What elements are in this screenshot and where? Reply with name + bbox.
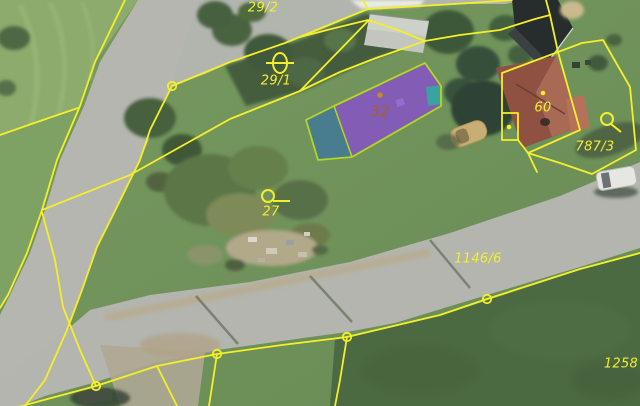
parcel-label-60[interactable]: 60 [534, 101, 551, 116]
parcel-label-787-3[interactable]: 787/3 [576, 140, 615, 155]
building-point [377, 92, 383, 98]
orthophoto-map: 29/229/1273260787/31146/61258 [0, 0, 640, 406]
parcel-point [507, 125, 512, 130]
parcel-label-1146-6[interactable]: 1146/6 [454, 252, 502, 267]
parcel-label-1258[interactable]: 1258 [604, 357, 638, 372]
garden-furniture [585, 60, 591, 65]
parcel-label-27[interactable]: 27 [262, 205, 280, 220]
garden-furniture [572, 62, 580, 68]
building-annex[interactable] [426, 85, 442, 106]
cadastral-map-viewport[interactable]: 29/229/1273260787/31146/61258 [0, 0, 640, 406]
parcel-label-32[interactable]: 32 [370, 103, 390, 121]
parcel-point [541, 91, 546, 96]
parcel-label-29-1[interactable]: 29/1 [261, 74, 291, 89]
haystack [560, 1, 584, 19]
parcel-label-29-2[interactable]: 29/2 [248, 1, 278, 16]
